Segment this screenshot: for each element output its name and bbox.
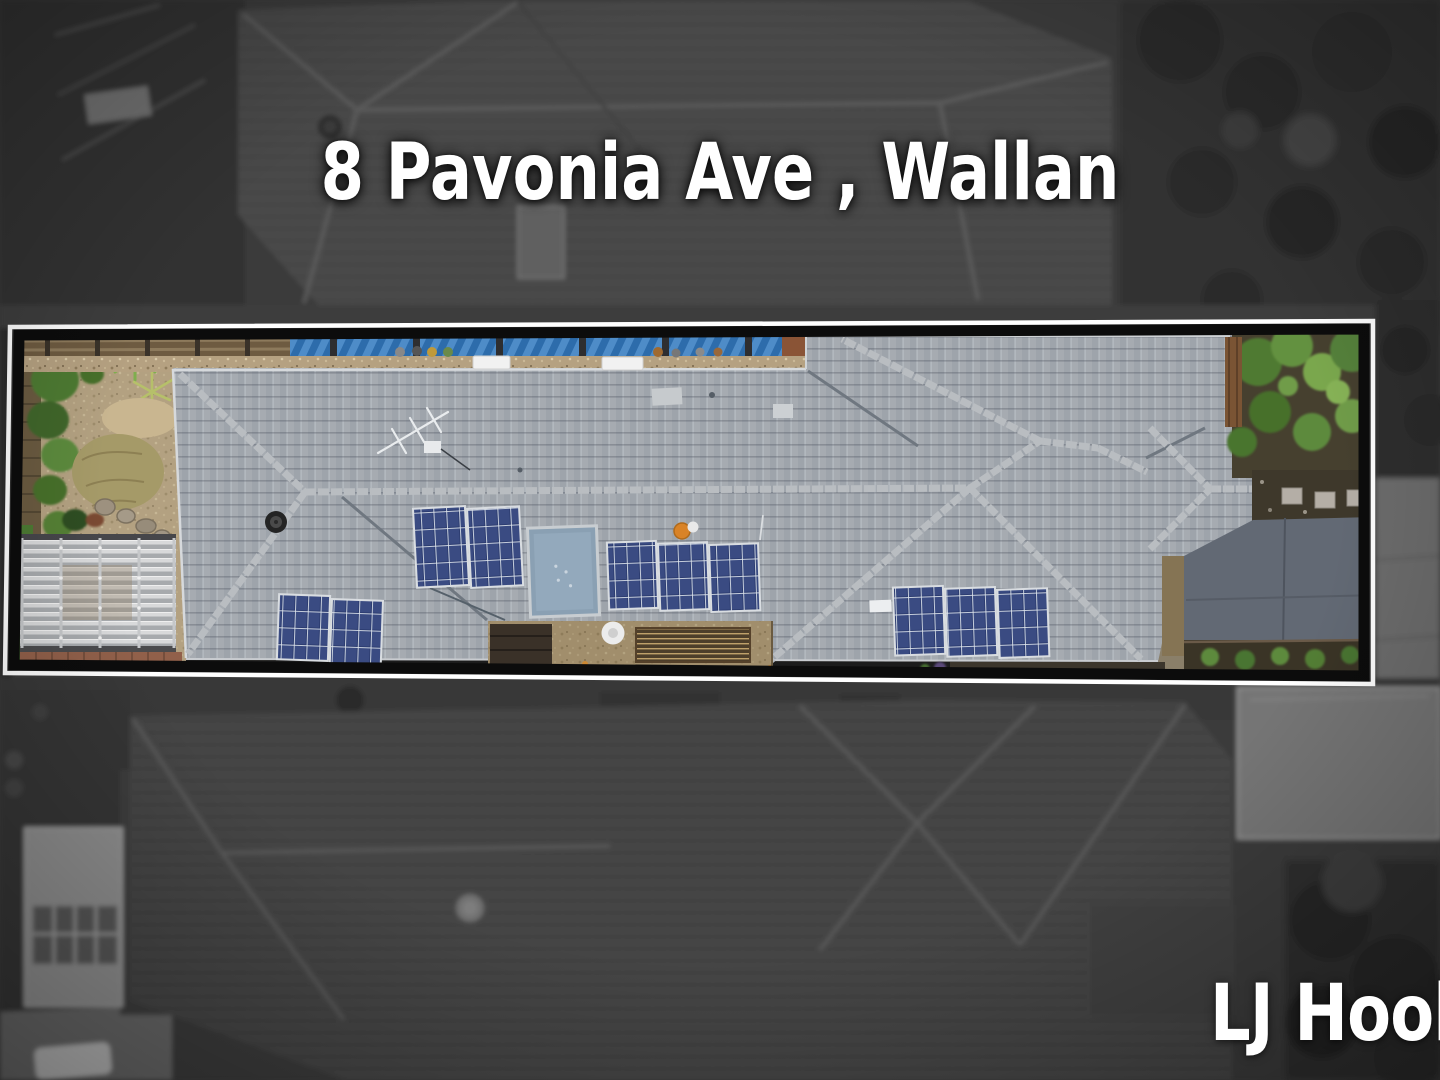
brand-watermark: LJ Hooker — [1210, 969, 1440, 1059]
listing-aerial-image: 8 Pavonia Ave , Wallan LJ Hooker — [0, 0, 1440, 1080]
property-address-title: 8 Pavonia Ave , Wallan — [144, 128, 1296, 218]
